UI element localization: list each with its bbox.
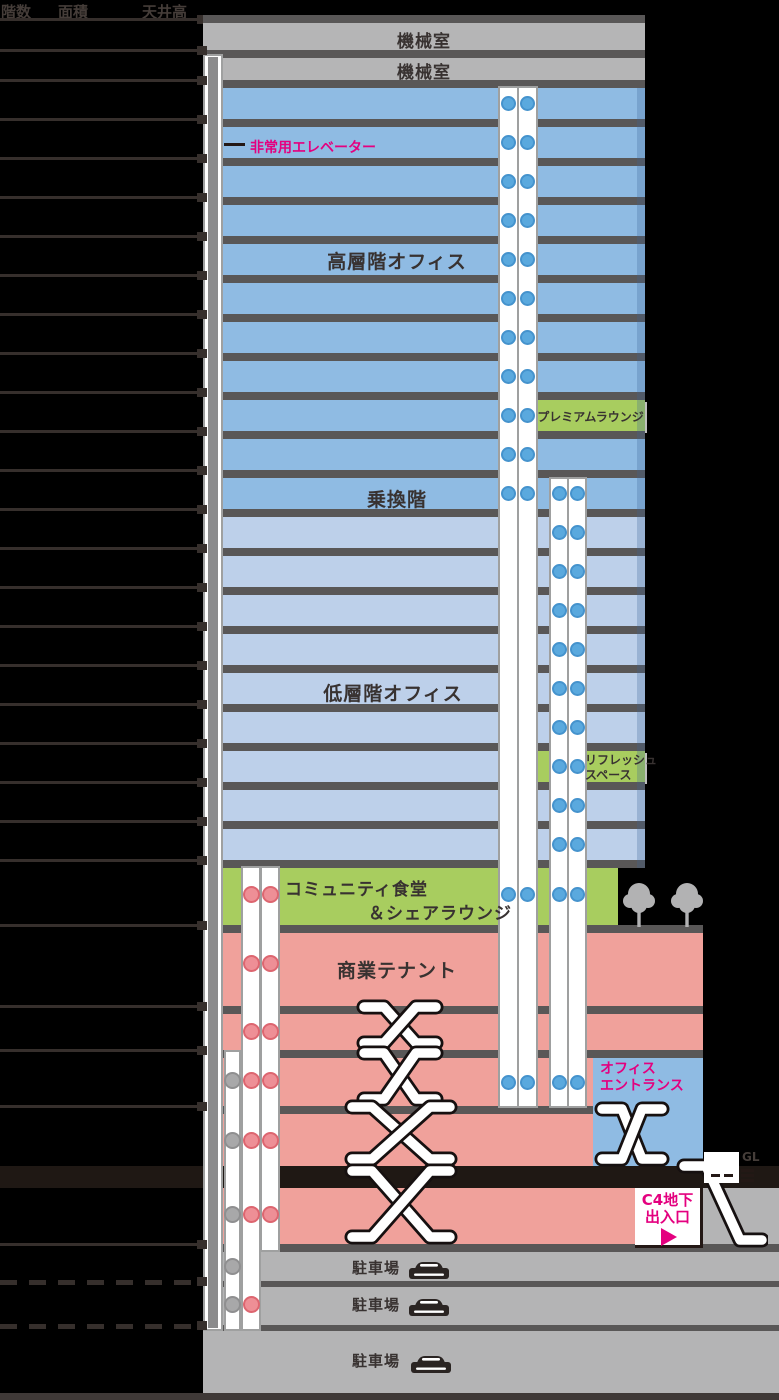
- elevator-car-dot: [520, 135, 535, 150]
- car-icon: [410, 1353, 452, 1375]
- gl-hatch-icon: [741, 1169, 754, 1183]
- elevator-car-dot: [520, 887, 535, 902]
- floor-slab: [203, 119, 645, 127]
- parking-label: 駐車場: [352, 1294, 400, 1315]
- elevator-car-dot: [501, 447, 516, 462]
- elevator-car-dot: [552, 759, 567, 774]
- leader-tick: [197, 856, 207, 865]
- leader-line: [0, 235, 200, 238]
- floor-slab: [203, 15, 645, 23]
- elevator-car-dot: [501, 330, 516, 345]
- emergency-elevator-rail: [208, 57, 218, 1328]
- elevator-car-dot: [243, 1206, 260, 1223]
- leader-tick: [197, 154, 207, 163]
- c4-exit-line1: C4地下: [635, 1192, 700, 1209]
- elevator-car-dot: [224, 1206, 241, 1223]
- parking-label: 駐車場: [352, 1257, 400, 1278]
- leader-line: [0, 49, 200, 52]
- leader-line: [0, 157, 200, 160]
- elevator-car-dot: [570, 681, 585, 696]
- leader-line-roof: [0, 18, 200, 21]
- leader-line: [0, 664, 200, 667]
- leader-tick: [197, 921, 207, 930]
- car-icon: [408, 1296, 450, 1318]
- parking-label: 駐車場: [352, 1350, 400, 1371]
- leader-tick: [197, 817, 207, 826]
- leader-line: [0, 508, 200, 511]
- transfer-floor-label: 乗換階: [247, 485, 547, 512]
- refresh-space-label: リフレッシュ スペース: [585, 753, 657, 783]
- elevator-car-dot: [501, 291, 516, 306]
- leader-tick: [197, 739, 207, 748]
- elevator-car-dot: [501, 1075, 516, 1090]
- leader-tick: [197, 1002, 207, 1011]
- leader-tick: [197, 388, 207, 397]
- leader-line: [0, 1243, 200, 1246]
- leader-line: [0, 430, 200, 433]
- commercial-elevator-shaft-a: [241, 866, 261, 1331]
- community-dining-line1: コミュニティ食堂: [285, 875, 428, 900]
- kiosk-vent-dash: [711, 1174, 720, 1177]
- elevator-car-dot: [570, 837, 585, 852]
- elevator-car-dot: [224, 1072, 241, 1089]
- leader-line: [0, 625, 200, 628]
- leader-line: [0, 118, 200, 121]
- elevator-car-dot: [570, 642, 585, 657]
- building-section-diagram: 階数 面積 天井高: [0, 0, 779, 1400]
- machine-room-27f-label: 機械室: [203, 27, 645, 52]
- elevator-car-dot: [520, 408, 535, 423]
- elevator-car-dot: [570, 1075, 585, 1090]
- leader-tick: [197, 46, 207, 55]
- elevator-car-dot: [552, 564, 567, 579]
- office-entrance-line1: オフィス: [600, 1061, 684, 1078]
- leader-line: [0, 1005, 200, 1008]
- elevator-car-dot: [224, 1258, 241, 1275]
- leader-tick: [197, 700, 207, 709]
- elevator-car-dot: [552, 837, 567, 852]
- leader-tick: [197, 544, 207, 553]
- leader-line: [0, 859, 200, 862]
- emergency-elevator-pointer: [224, 143, 245, 146]
- elevator-car-dot: [570, 759, 585, 774]
- elevator-car-dot: [243, 1132, 260, 1149]
- leader-line: [0, 1324, 200, 1329]
- elevator-car-dot: [224, 1296, 241, 1313]
- community-dining-line2: ＆シェアラウンジ: [368, 899, 512, 924]
- leader-tick: [197, 232, 207, 241]
- leader-tick: [197, 1277, 207, 1286]
- floor-slab: [203, 431, 645, 439]
- floor-slab: [203, 197, 645, 205]
- tree-icon: [621, 881, 657, 927]
- elevator-car-dot: [262, 1023, 279, 1040]
- elevator-car-dot: [501, 96, 516, 111]
- leader-line: [0, 1049, 200, 1052]
- elevator-car-dot: [570, 798, 585, 813]
- floor-slab: [203, 1325, 779, 1331]
- office-entrance-line2: エントランス: [600, 1078, 684, 1095]
- elevator-car-dot: [243, 1296, 260, 1313]
- refresh-space-line1: リフレッシュ: [585, 753, 657, 768]
- elevator-car-dot: [552, 720, 567, 735]
- elevator-car-dot: [262, 1206, 279, 1223]
- leader-line: [0, 391, 200, 394]
- leader-line: [0, 820, 200, 823]
- c4-street-kiosk: [704, 1152, 739, 1183]
- leader-tick: [197, 661, 207, 670]
- elevator-car-dot: [552, 1075, 567, 1090]
- leader-tick: [197, 466, 207, 475]
- premium-lounge-label: プレミアムラウンジ: [536, 408, 645, 425]
- leader-tick: [197, 271, 207, 280]
- leader-line: [0, 79, 200, 82]
- leader-tick: [197, 76, 207, 85]
- leader-tick: [197, 583, 207, 592]
- elevator-car-dot: [243, 1023, 260, 1040]
- floor-slab: [203, 1281, 779, 1287]
- elevator-car-dot: [570, 887, 585, 902]
- elevator-car-dot: [520, 174, 535, 189]
- escalator-office-entrance: [594, 1096, 670, 1172]
- leader-tick: [197, 1321, 207, 1330]
- service-elevator-shaft: [224, 1050, 241, 1331]
- kiosk-vent-dash: [724, 1174, 733, 1177]
- leader-line: [0, 1280, 200, 1285]
- floor-slab: [203, 314, 645, 322]
- leader-line: [0, 469, 200, 472]
- elevator-car-dot: [520, 447, 535, 462]
- leader-line: [0, 274, 200, 277]
- leader-line: [0, 586, 200, 589]
- elevator-car-dot: [501, 213, 516, 228]
- elevator-car-dot: [552, 603, 567, 618]
- floor-slab: [203, 353, 645, 361]
- elevator-car-dot: [262, 1072, 279, 1089]
- leader-tick: [197, 505, 207, 514]
- emergency-elevator-label: 非常用エレベーター: [250, 137, 376, 157]
- elevator-car-dot: [520, 369, 535, 384]
- leader-tick: [197, 1046, 207, 1055]
- elevator-car-dot: [262, 1132, 279, 1149]
- elevator-car-dot: [570, 720, 585, 735]
- machine-room-26f-label: 機械室: [203, 58, 645, 83]
- leader-line: [0, 196, 200, 199]
- leader-line: [0, 781, 200, 784]
- elevator-car-dot: [552, 681, 567, 696]
- leader-line: [0, 742, 200, 745]
- gl-label: GL: [742, 1150, 760, 1164]
- leader-tick: [197, 622, 207, 631]
- elevator-car-dot: [552, 486, 567, 501]
- refresh-space-line2: スペース: [585, 768, 657, 783]
- leader-line: [0, 352, 200, 355]
- high-rise-office-label: 高層階オフィス: [247, 247, 547, 274]
- elevator-car-dot: [570, 525, 585, 540]
- elevator-car-dot: [570, 486, 585, 501]
- commercial-tenant-label: 商業テナント: [247, 956, 547, 983]
- leader-line: [0, 1105, 200, 1108]
- elevator-car-dot: [243, 1072, 260, 1089]
- commercial-elevator-shaft-b: [260, 866, 280, 1252]
- elevator-car-dot: [501, 174, 516, 189]
- leader-tick: [197, 1240, 207, 1249]
- car-icon: [408, 1259, 450, 1281]
- leader-line: [0, 547, 200, 550]
- elevator-car-dot: [243, 886, 260, 903]
- elevator-car-dot: [570, 603, 585, 618]
- facade-shade: [637, 88, 645, 868]
- c4-exit-line2: 出入口: [635, 1209, 700, 1226]
- elevator-car-dot: [501, 408, 516, 423]
- leader-tick: [197, 1102, 207, 1111]
- elevator-car-dot: [552, 525, 567, 540]
- elevator-car-dot: [520, 96, 535, 111]
- leader-line: [0, 703, 200, 706]
- c4-exit-arrow-icon: [661, 1228, 677, 1246]
- leader-tick: [197, 115, 207, 124]
- tree-icon: [669, 881, 705, 927]
- floor-slab: [203, 392, 645, 400]
- elevator-car-dot: [552, 798, 567, 813]
- elevator-car-dot: [520, 213, 535, 228]
- leader-line: [0, 924, 200, 927]
- floor-slab: [203, 158, 645, 166]
- high-rise-elevator-shaft-1: [498, 86, 519, 1108]
- elevator-car-dot: [552, 887, 567, 902]
- elevator-car-dot: [520, 330, 535, 345]
- floor-slab: [203, 275, 645, 283]
- high-rise-elevator-shaft-2: [517, 86, 538, 1108]
- elevator-car-dot: [520, 291, 535, 306]
- escalator-b1f-1f: [344, 1158, 458, 1250]
- elevator-car-dot: [552, 642, 567, 657]
- elevator-car-dot: [262, 886, 279, 903]
- low-rise-office-label: 低層階オフィス: [243, 679, 543, 706]
- elevator-car-dot: [224, 1132, 241, 1149]
- floor-slab: [203, 236, 645, 244]
- elevator-car-dot: [520, 1075, 535, 1090]
- elevator-car-dot: [501, 369, 516, 384]
- leader-tick: [197, 310, 207, 319]
- leader-tick: [197, 778, 207, 787]
- office-entrance-label: オフィス エントランス: [600, 1061, 684, 1095]
- leader-line: [0, 313, 200, 316]
- elevator-car-dot: [501, 135, 516, 150]
- leader-tick: [197, 193, 207, 202]
- b4-bottom-band: [0, 1393, 779, 1400]
- leader-tick: [197, 349, 207, 358]
- elevator-car-dot: [570, 564, 585, 579]
- leader-tick: [197, 427, 207, 436]
